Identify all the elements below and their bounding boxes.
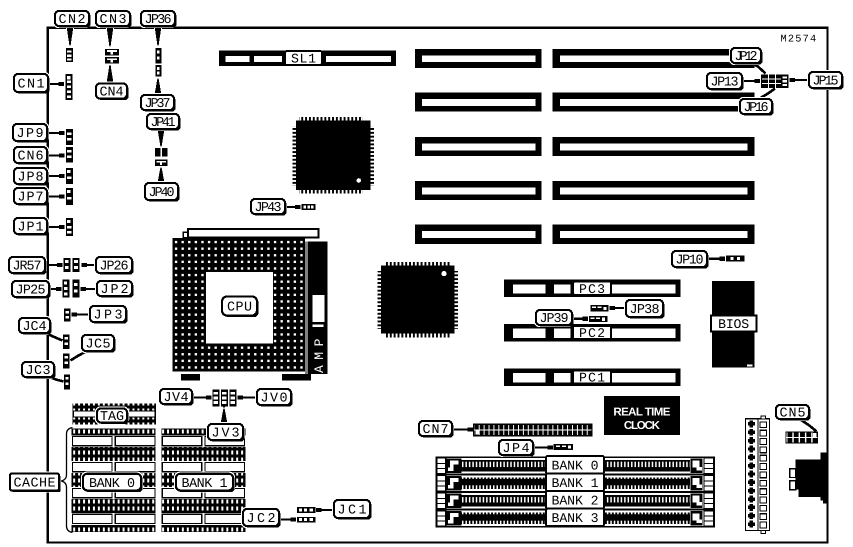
svg-text:CPU: CPU bbox=[227, 301, 252, 316]
svg-text:JP1: JP1 bbox=[18, 221, 44, 236]
svg-text:CN2: CN2 bbox=[59, 13, 86, 28]
svg-text:JP40: JP40 bbox=[149, 186, 175, 201]
svg-text:JP3: JP3 bbox=[94, 309, 123, 324]
svg-text:JC2: JC2 bbox=[247, 512, 276, 527]
svg-text:BANK 2: BANK 2 bbox=[552, 493, 599, 508]
svg-text:BANK 0: BANK 0 bbox=[552, 458, 599, 473]
svg-text:CN3: CN3 bbox=[100, 13, 127, 28]
svg-text:JP7: JP7 bbox=[18, 191, 44, 206]
svg-text:CN7: CN7 bbox=[423, 423, 449, 438]
svg-text:JP37: JP37 bbox=[145, 97, 171, 112]
svg-text:JP8: JP8 bbox=[18, 171, 44, 186]
svg-text:JV3: JV3 bbox=[212, 427, 240, 442]
svg-text:BANK 3: BANK 3 bbox=[552, 511, 599, 526]
svg-text:JP2: JP2 bbox=[101, 283, 129, 298]
svg-text:JV4: JV4 bbox=[164, 391, 189, 406]
svg-text:TAG: TAG bbox=[100, 410, 124, 425]
svg-text:JP15: JP15 bbox=[813, 75, 839, 90]
svg-text:PC1: PC1 bbox=[579, 371, 605, 386]
svg-text:AMP: AMP bbox=[312, 333, 327, 373]
svg-text:JP9: JP9 bbox=[17, 127, 44, 142]
svg-text:JC1: JC1 bbox=[338, 504, 367, 519]
svg-text:M2574: M2574 bbox=[781, 34, 818, 46]
svg-text:PC2: PC2 bbox=[579, 326, 605, 341]
svg-text:JP25: JP25 bbox=[16, 284, 46, 299]
svg-text:REAL TIME: REAL TIME bbox=[613, 407, 670, 419]
svg-text:JP26: JP26 bbox=[100, 260, 129, 275]
svg-text:BANK 0: BANK 0 bbox=[89, 477, 135, 492]
svg-text:JC3: JC3 bbox=[26, 364, 51, 379]
svg-text:JP36: JP36 bbox=[145, 13, 172, 28]
svg-text:PC3: PC3 bbox=[579, 282, 605, 297]
svg-text:BANK 1: BANK 1 bbox=[552, 476, 599, 491]
svg-text:JP4: JP4 bbox=[503, 442, 530, 457]
svg-text:JP41: JP41 bbox=[151, 116, 176, 131]
svg-text:JP16: JP16 bbox=[744, 101, 769, 116]
svg-text:SL1: SL1 bbox=[291, 52, 316, 67]
svg-text:CN5: CN5 bbox=[780, 407, 806, 422]
svg-text:JV0: JV0 bbox=[261, 392, 288, 407]
svg-text:JP12: JP12 bbox=[735, 50, 758, 65]
svg-text:CN1: CN1 bbox=[18, 78, 45, 93]
svg-text:CN6: CN6 bbox=[18, 150, 44, 165]
svg-text:BIOS: BIOS bbox=[718, 317, 749, 332]
svg-text:JP39: JP39 bbox=[540, 312, 569, 327]
svg-text:CLOCK: CLOCK bbox=[624, 420, 661, 432]
svg-text:JP10: JP10 bbox=[676, 254, 704, 269]
svg-text:CACHE: CACHE bbox=[14, 477, 56, 492]
svg-text:JP43: JP43 bbox=[255, 201, 282, 216]
svg-text:BANK 1: BANK 1 bbox=[182, 477, 228, 492]
svg-text:JC5: JC5 bbox=[86, 338, 111, 353]
svg-text:JP38: JP38 bbox=[630, 303, 660, 318]
svg-text:JP13: JP13 bbox=[711, 76, 739, 91]
svg-text:JR57: JR57 bbox=[13, 260, 42, 275]
svg-text:JC4: JC4 bbox=[23, 320, 47, 335]
svg-text:CN4: CN4 bbox=[100, 86, 124, 101]
